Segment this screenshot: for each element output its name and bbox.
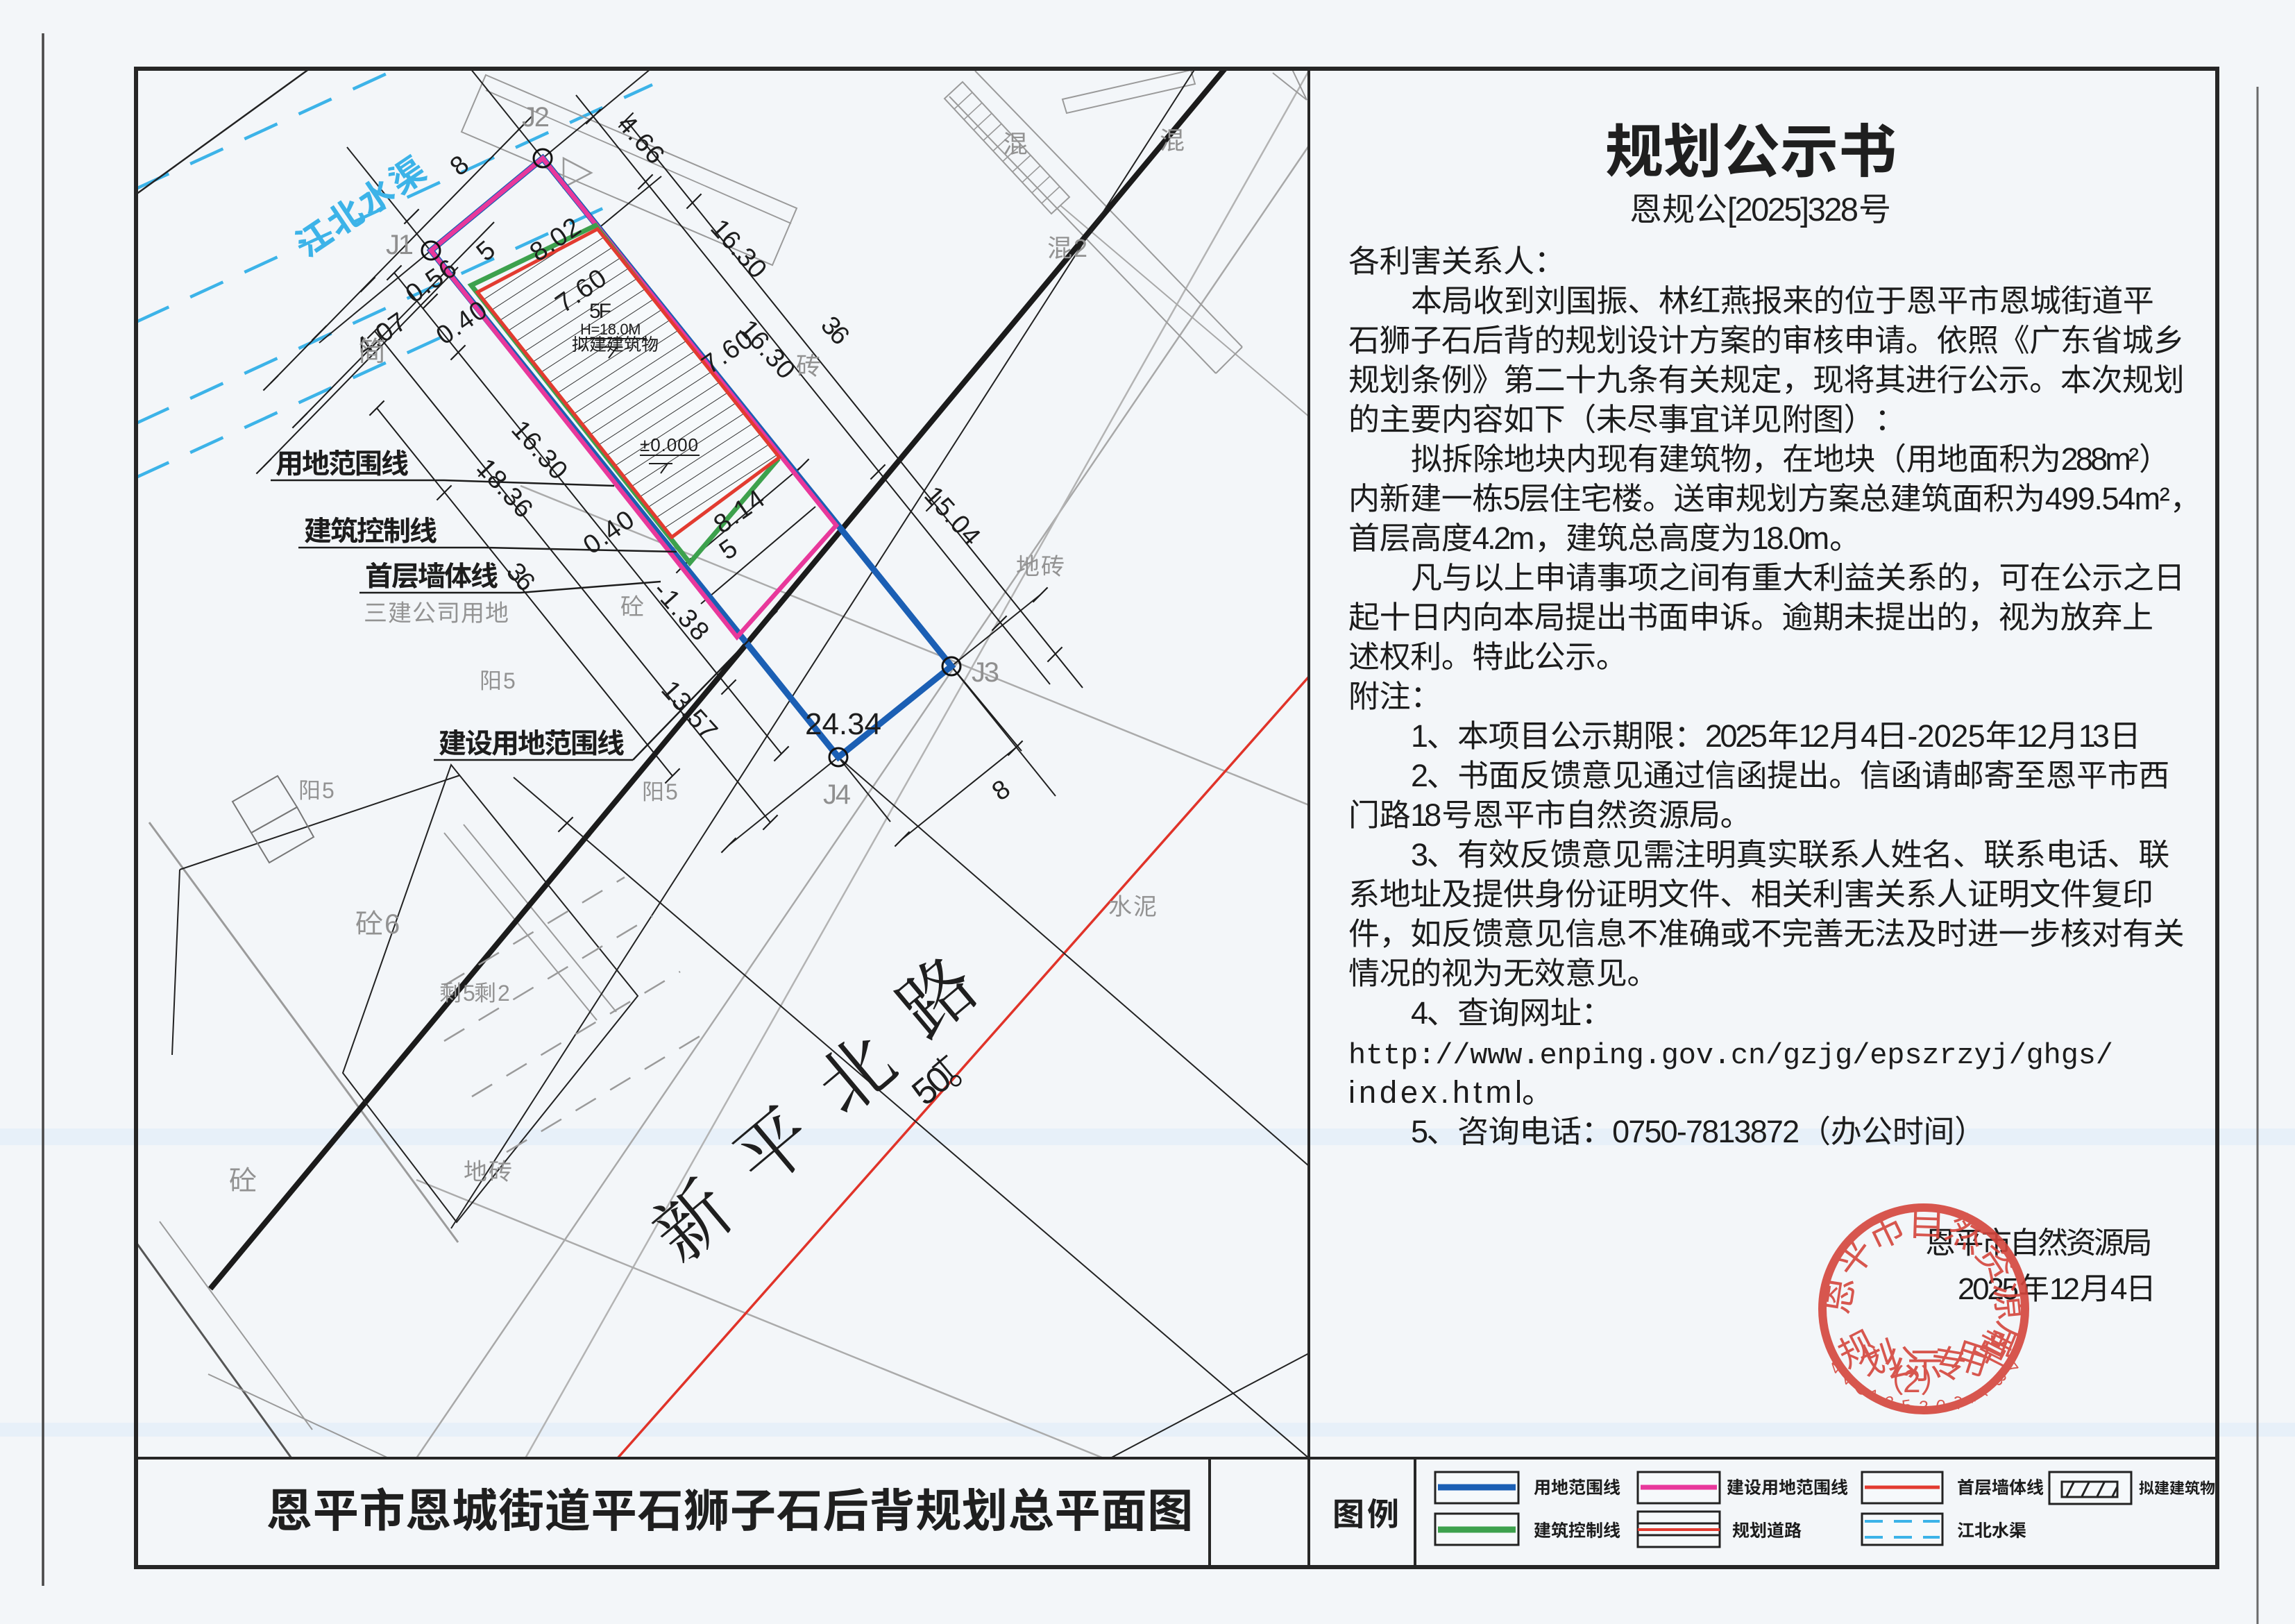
svg-text:J1: J1 [386, 230, 414, 260]
svg-text:4: 4 [1861, 718, 1878, 754]
svg-text:±0.000: ±0.000 [640, 434, 698, 455]
svg-text:3: 3 [1411, 837, 1428, 872]
svg-text:3: 3 [1919, 1398, 1929, 1417]
svg-text:4: 4 [1411, 995, 1428, 1031]
svg-text:index.html: index.html [1348, 1074, 1522, 1110]
svg-text:2: 2 [1903, 1363, 1921, 1399]
svg-text:18.0m: 18.0m [1752, 521, 1830, 556]
svg-text:288m²: 288m² [2061, 441, 2140, 477]
svg-text:J4: J4 [823, 779, 851, 810]
svg-text:12: 12 [2049, 1272, 2080, 1306]
svg-text:24.34: 24.34 [805, 707, 881, 741]
svg-text:6: 6 [384, 909, 400, 940]
svg-text:-2025: -2025 [1907, 718, 1985, 754]
svg-text:499.54m²: 499.54m² [2045, 481, 2170, 516]
svg-text:2: 2 [498, 981, 510, 1006]
svg-text:2025: 2025 [1705, 718, 1768, 754]
svg-text:1: 1 [1411, 718, 1428, 754]
svg-text:H=18.0M: H=18.0M [580, 321, 641, 338]
svg-text:2: 2 [1411, 758, 1428, 793]
svg-text:J3: J3 [972, 657, 999, 688]
svg-text:5: 5 [322, 778, 334, 803]
svg-text:http://www.enping.gov.cn/gzjg/: http://www.enping.gov.cn/gzjg/epszrzyj/g… [1348, 1039, 2113, 1072]
svg-text:5: 5 [463, 981, 475, 1006]
svg-text:2: 2 [1074, 234, 1087, 262]
svg-text:[2025]328: [2025]328 [1727, 191, 1858, 228]
svg-text:12: 12 [1799, 718, 1830, 754]
svg-text:5F: 5F [589, 300, 611, 323]
svg-text:J2: J2 [522, 102, 550, 133]
svg-text:4: 4 [2110, 1272, 2127, 1306]
svg-text:5: 5 [503, 668, 516, 693]
svg-text:18: 18 [1410, 797, 1441, 833]
svg-text:0750-7813872: 0750-7813872 [1612, 1114, 1799, 1149]
svg-text:12: 12 [2016, 718, 2047, 754]
svg-text:5: 5 [1411, 1114, 1428, 1149]
svg-text:5: 5 [1503, 481, 1521, 516]
svg-text:13: 13 [2078, 718, 2110, 754]
svg-text:5: 5 [666, 779, 678, 804]
svg-text:4.2m: 4.2m [1472, 521, 1534, 556]
